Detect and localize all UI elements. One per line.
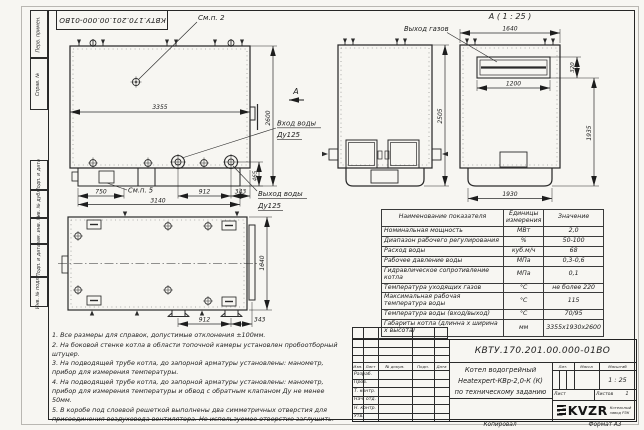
note-4: 4. На подводящей трубе котла, до запорно… <box>52 378 346 405</box>
footer-format-label: Формат А3 <box>570 422 640 428</box>
tb-scale-value: 1 : 25 <box>599 370 636 389</box>
spec-value: 50-100 <box>544 236 604 246</box>
tb-scale-label: Масштаб <box>599 362 636 370</box>
spec-value: не более 220 <box>544 283 604 293</box>
tb-line <box>434 340 435 421</box>
note-1: 1. Все размеры для справок, допустимые о… <box>52 331 346 340</box>
tb-role-razrab: Разраб. <box>354 370 378 379</box>
dim-1935: 1935 <box>586 125 593 140</box>
rear-base <box>468 168 552 186</box>
dim-343-side: 343 <box>235 189 247 196</box>
gas-outlet-opening <box>477 57 550 78</box>
kvzr-caption-line2: завод РЗК <box>610 411 632 416</box>
tb-product-line2: Heatexpert-КВр-2,0-К (К) <box>449 375 552 386</box>
spec-units: °С <box>504 283 544 293</box>
spec-name: Номинальная мощность <box>382 226 504 236</box>
spec-units: МВт <box>504 226 544 236</box>
base-skid <box>72 168 240 186</box>
dim-1200: 1200 <box>506 81 521 88</box>
spec-table: Наименование показателя Единицы измерени… <box>381 209 604 337</box>
callout-smp2-label: См.п. 2 <box>198 13 225 22</box>
detail-a-title: А ( 1 : 25 ) <box>488 12 531 21</box>
dim-465: 465 <box>253 170 259 181</box>
tb-product-line1: Котел водогрейный <box>449 364 552 375</box>
spec-col-value: Значение <box>544 210 604 227</box>
tb-line <box>353 347 449 348</box>
plan-view <box>58 212 272 328</box>
dim-343-plan: 343 <box>254 317 266 324</box>
tb-line <box>449 398 552 399</box>
tb-product-line3: по техническому заданию <box>449 386 552 397</box>
dim-912-plan: 912 <box>199 317 211 324</box>
spec-name: Рабочее давление воды <box>382 256 504 266</box>
tb-line <box>559 370 560 389</box>
kvzr-logo: KVZR Котельный завод РЗК <box>552 400 636 421</box>
spec-value: 68 <box>544 246 604 256</box>
spec-row: Гидравлическое сопротивление котлаМПа0,1 <box>382 266 604 283</box>
footer-copied-label: Копировал <box>458 422 542 428</box>
spec-name: Температура воды (вход/выход) <box>382 310 504 320</box>
tb-sheet-label: Лист <box>552 389 596 400</box>
rear-lugs <box>465 39 555 46</box>
tb-role-nachotd: Нач. отд. <box>354 396 378 405</box>
front-view <box>322 39 449 187</box>
spec-units: °С <box>504 293 544 310</box>
spec-header-row: Наименование показателя Единицы измерени… <box>382 210 604 227</box>
spec-name: Диапазон рабочего регулирования <box>382 236 504 246</box>
dim-750: 750 <box>95 189 107 196</box>
tb-doc-number: КВТУ.170.201.00.000-01ВО <box>449 340 636 362</box>
dim-320: 320 <box>570 62 576 73</box>
title-block: КВТУ.170.201.00.000-01ВО Изм. Лист № док… <box>352 339 637 422</box>
side-pipe-stub <box>250 104 258 130</box>
tb-role-utv: Утв. <box>354 413 378 422</box>
tb-col-data: Дата <box>434 362 449 370</box>
spec-row: Диапазон рабочего регулирования%50-100 <box>382 236 604 246</box>
rear-dimensions <box>460 29 599 202</box>
spec-row: Температура уходящих газов°Сне более 220 <box>382 283 604 293</box>
spec-row: Расход водыкуб.м/ч68 <box>382 246 604 256</box>
dim-2505: 2505 <box>437 108 444 123</box>
tb-col-podp: Подп. <box>412 362 434 370</box>
note-3: 3. На подводящей трубе котла, до запорно… <box>52 359 346 377</box>
plan-vents <box>87 220 236 306</box>
dim-1640-rear: 1640 <box>502 26 517 33</box>
tb-role-prov: Пров. <box>354 379 378 388</box>
spec-value: 0,1 <box>544 266 604 283</box>
plan-rear-flange <box>249 225 255 300</box>
plan-left-tab <box>62 256 68 273</box>
dim-1930: 1930 <box>502 191 517 198</box>
dim-3140: 3140 <box>150 198 165 205</box>
water-in-label: Вход воды <box>277 120 317 128</box>
side-dimensions <box>70 46 277 207</box>
spec-name: Максимальная рабочая температура воды <box>382 293 504 310</box>
tb-sheets-label: Листов <box>594 389 622 400</box>
revision-row <box>352 327 448 339</box>
spec-units: МПа <box>504 266 544 283</box>
spec-units: куб.м/ч <box>504 246 544 256</box>
note-2: 2. На боковой стенке котла в области топ… <box>52 341 346 359</box>
tb-line <box>412 340 413 421</box>
rear-view <box>447 29 599 202</box>
tb-line <box>378 340 379 421</box>
side-view <box>70 22 321 210</box>
tb-col-docnum: № докум. <box>378 362 412 370</box>
water-out-label: Выход воды <box>258 190 303 198</box>
spec-name: Температура уходящих газов <box>382 283 504 293</box>
note-5: 5. В коробе под слоевой решеткой выполне… <box>52 406 346 424</box>
spec-units: °С <box>504 310 544 320</box>
tb-mass-label: Масса <box>574 362 599 370</box>
kvzr-logo-icon <box>557 405 566 416</box>
spec-name: Гидравлическое сопротивление котла <box>382 266 504 283</box>
spec-col-name: Наименование показателя <box>382 210 504 227</box>
drawing-sheet: Перв. примен. Справ. № Подп. и дата Инв.… <box>0 0 644 430</box>
spec-col-units: Единицы измерения <box>504 210 544 227</box>
water-out-dn: Ду125 <box>257 202 282 210</box>
tb-role-tkontr: Т. контр. <box>354 387 378 396</box>
spec-row: Рабочее давление водыМПа0,3-0,6 <box>382 256 604 266</box>
tb-lit-label: Лит. <box>552 362 574 370</box>
spec-row: Температура воды (вход/выход)°С70/95 <box>382 310 604 320</box>
dim-3355: 3355 <box>152 104 167 111</box>
tb-line <box>353 355 449 356</box>
kvzr-caption-line1: Котельный <box>610 406 632 411</box>
section-a-label: А <box>292 87 298 96</box>
tb-sheets-value: 1 <box>620 389 634 400</box>
spec-units: мм <box>504 320 544 337</box>
spec-value: 2,0 <box>544 226 604 236</box>
kvzr-logo-text: KVZR <box>568 403 608 418</box>
tb-col-izm: Изм. <box>353 362 363 370</box>
spec-units: % <box>504 236 544 246</box>
spec-value: 3355х1930х2600 <box>544 320 604 337</box>
tb-col-list: Лист <box>363 362 378 370</box>
spec-row: Максимальная рабочая температура воды°С1… <box>382 293 604 310</box>
tb-line <box>566 370 567 389</box>
technical-notes: 1. Все размеры для справок, допустимые о… <box>52 331 346 424</box>
spec-row: Номинальная мощностьМВт2,0 <box>382 226 604 236</box>
tb-role-nkontr: Н. контр. <box>354 404 378 413</box>
spec-name: Расход воды <box>382 246 504 256</box>
gas-leader <box>447 33 497 63</box>
gas-out-label: Выход газов <box>404 25 449 33</box>
dim-2600: 2600 <box>265 110 272 125</box>
callout-leader <box>139 22 197 79</box>
spec-value: 0,3-0,6 <box>544 256 604 266</box>
water-in-dn: Ду125 <box>276 131 301 139</box>
spec-units: МПа <box>504 256 544 266</box>
dim-1640-plan: 1640 <box>259 255 266 270</box>
spec-value: 115 <box>544 293 604 310</box>
callout-smp5-label: См.п. 5 <box>128 187 153 195</box>
dim-912-side: 912 <box>199 189 211 196</box>
furnace-doors <box>346 140 419 183</box>
kvzr-logo-caption: Котельный завод РЗК <box>610 406 632 415</box>
front-lugs <box>343 39 407 46</box>
spec-value: 70/95 <box>544 310 604 320</box>
rear-small-opening <box>500 152 527 167</box>
